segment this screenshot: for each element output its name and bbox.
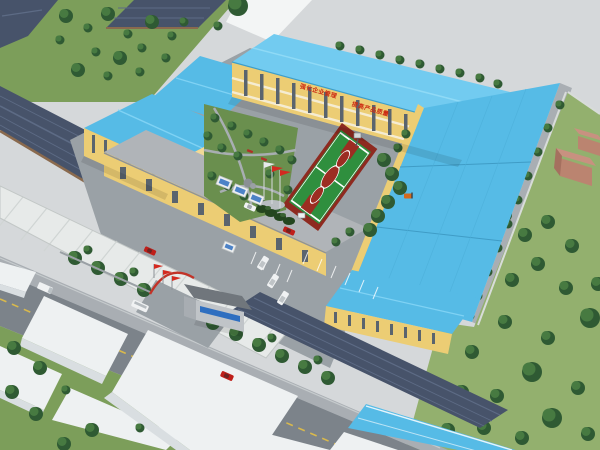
basketball-hoop — [298, 212, 305, 219]
aerial-rendering: 强化企业管理 提高产品质量 — [0, 0, 600, 450]
factory-campus-scene: 强化企业管理 提高产品质量 — [0, 0, 600, 450]
